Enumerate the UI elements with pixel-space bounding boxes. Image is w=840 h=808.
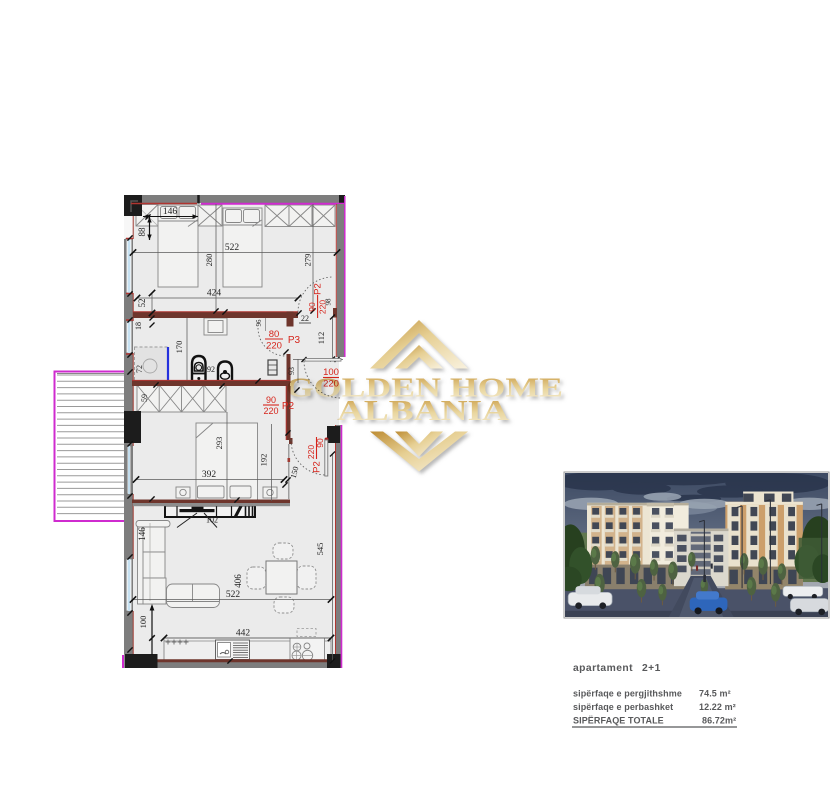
svg-text:100: 100 xyxy=(138,616,148,629)
svg-text:18: 18 xyxy=(134,322,143,330)
svg-text:293: 293 xyxy=(214,437,224,450)
svg-text:SIPËRFAQE TOTALE: SIPËRFAQE TOTALE xyxy=(573,716,664,726)
svg-text:170: 170 xyxy=(174,341,184,354)
svg-text:112: 112 xyxy=(316,332,326,344)
svg-text:P2: P2 xyxy=(312,461,323,473)
svg-text:2+1: 2+1 xyxy=(642,663,661,674)
svg-text:80: 80 xyxy=(269,329,280,340)
svg-text:12.22 m²: 12.22 m² xyxy=(699,702,736,712)
svg-text:52: 52 xyxy=(137,299,147,308)
svg-text:522: 522 xyxy=(225,243,240,253)
svg-text:192: 192 xyxy=(259,454,269,467)
svg-text:280: 280 xyxy=(204,254,214,267)
svg-text:220: 220 xyxy=(266,341,282,352)
svg-text:apartament: apartament xyxy=(573,663,633,674)
svg-text:392: 392 xyxy=(202,470,217,480)
svg-text:88: 88 xyxy=(137,227,147,237)
svg-text:96: 96 xyxy=(255,319,263,327)
svg-text:86.72m²: 86.72m² xyxy=(702,716,736,726)
svg-text:406: 406 xyxy=(233,574,243,588)
svg-text:90: 90 xyxy=(307,302,317,312)
svg-text:ALBANIA: ALBANIA xyxy=(337,395,509,427)
svg-text:146: 146 xyxy=(137,527,147,541)
svg-text:220: 220 xyxy=(306,445,316,459)
svg-text:522: 522 xyxy=(226,590,241,600)
svg-text:74.5 m²: 74.5 m² xyxy=(699,689,731,699)
svg-text:102: 102 xyxy=(206,516,218,525)
svg-text:90: 90 xyxy=(315,438,325,448)
svg-text:90: 90 xyxy=(266,395,276,405)
svg-text:22: 22 xyxy=(301,314,309,323)
svg-text:92: 92 xyxy=(207,365,215,374)
svg-text:P2: P2 xyxy=(282,401,295,412)
svg-text:P3: P3 xyxy=(288,335,301,346)
svg-text:P2: P2 xyxy=(313,283,324,295)
svg-text:279: 279 xyxy=(303,254,313,267)
svg-text:72: 72 xyxy=(135,365,144,373)
svg-text:220: 220 xyxy=(263,406,278,416)
svg-text:424: 424 xyxy=(207,289,222,299)
svg-text:442: 442 xyxy=(236,629,251,639)
svg-text:545: 545 xyxy=(315,543,325,556)
svg-text:146: 146 xyxy=(163,207,178,217)
svg-text:220: 220 xyxy=(318,300,328,314)
svg-text:sipërfaqe e pergjithshme: sipërfaqe e pergjithshme xyxy=(573,689,682,699)
svg-text:59: 59 xyxy=(140,394,149,402)
svg-text:sipërfaqe e perbashket: sipërfaqe e perbashket xyxy=(573,702,673,712)
